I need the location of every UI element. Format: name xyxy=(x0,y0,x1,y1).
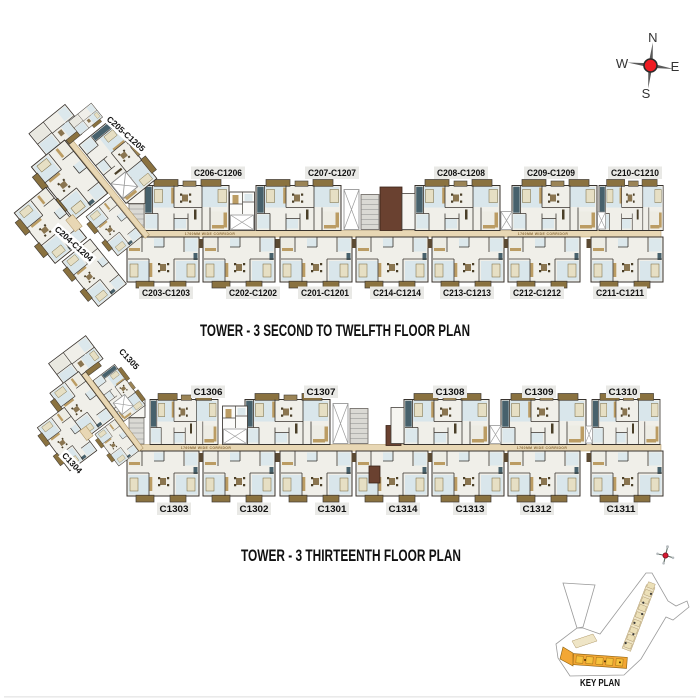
svg-text:C1309: C1309 xyxy=(525,387,554,398)
svg-text:C211-C1211: C211-C1211 xyxy=(596,288,645,299)
svg-text:TOWER - 3 SECOND TO TWELFTH F: TOWER - 3 SECOND TO TWELFTH FLOOR PLAN xyxy=(200,321,470,340)
svg-text:C210-C1210: C210-C1210 xyxy=(611,168,659,179)
svg-text:C208-C1208: C208-C1208 xyxy=(437,168,485,179)
svg-text:C1314: C1314 xyxy=(389,504,419,515)
svg-text:C207-C1207: C207-C1207 xyxy=(308,168,356,179)
svg-text:C1306: C1306 xyxy=(194,387,223,398)
svg-text:W: W xyxy=(616,56,629,71)
svg-text:N: N xyxy=(648,30,657,45)
svg-text:KEY PLAN: KEY PLAN xyxy=(580,677,620,689)
svg-text:C206-C1206: C206-C1206 xyxy=(194,168,242,179)
svg-text:S: S xyxy=(642,86,651,101)
svg-text:C201-C1201: C201-C1201 xyxy=(301,288,350,299)
svg-text:C1308: C1308 xyxy=(436,387,465,398)
svg-text:TOWER - 3 THIRTEENTH FLOOR P: TOWER - 3 THIRTEENTH FLOOR PLAN xyxy=(241,546,461,565)
svg-text:C1312: C1312 xyxy=(523,504,552,515)
svg-text:C1302: C1302 xyxy=(240,504,269,515)
svg-text:C1310: C1310 xyxy=(609,387,638,398)
svg-text:1760MM WIDE CORRIDOR: 1760MM WIDE CORRIDOR xyxy=(518,232,569,236)
svg-text:C1311: C1311 xyxy=(607,504,637,515)
svg-text:C202-C1202: C202-C1202 xyxy=(229,288,277,299)
svg-text:1760MM WIDE CORRIDOR: 1760MM WIDE CORRIDOR xyxy=(181,446,232,450)
svg-text:C214-C1214: C214-C1214 xyxy=(373,288,422,299)
svg-text:1760MM WIDE CORRIDOR: 1760MM WIDE CORRIDOR xyxy=(185,232,236,236)
svg-text:1760MM WIDE CORRIDOR: 1760MM WIDE CORRIDOR xyxy=(517,446,568,450)
svg-text:C1301: C1301 xyxy=(318,504,348,515)
svg-text:C1313: C1313 xyxy=(456,504,485,515)
svg-text:C1303: C1303 xyxy=(160,504,189,515)
svg-text:C203-C1203: C203-C1203 xyxy=(142,288,190,299)
svg-text:E: E xyxy=(671,59,680,74)
svg-text:C1307: C1307 xyxy=(307,387,336,398)
svg-text:C212-C1212: C212-C1212 xyxy=(513,288,561,299)
svg-text:C209-C1209: C209-C1209 xyxy=(527,168,575,179)
svg-text:C213-C1213: C213-C1213 xyxy=(443,288,491,299)
